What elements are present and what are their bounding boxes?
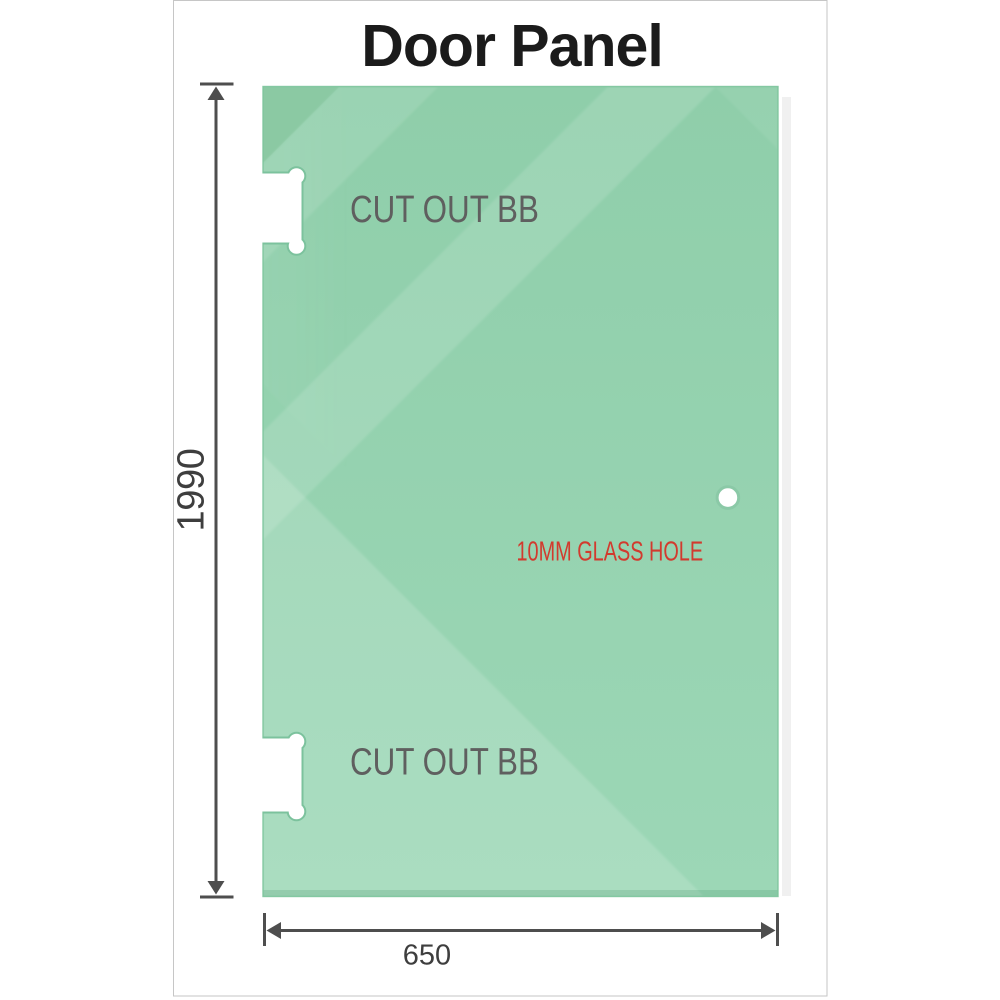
svg-text:CUT OUT BB: CUT OUT BB: [350, 188, 539, 231]
svg-text:Door Panel: Door Panel: [361, 13, 662, 79]
svg-text:1990: 1990: [171, 449, 213, 532]
svg-text:650: 650: [403, 940, 451, 972]
svg-text:10MM GLASS HOLE: 10MM GLASS HOLE: [517, 536, 704, 567]
svg-text:CUT OUT BB: CUT OUT BB: [350, 741, 539, 784]
